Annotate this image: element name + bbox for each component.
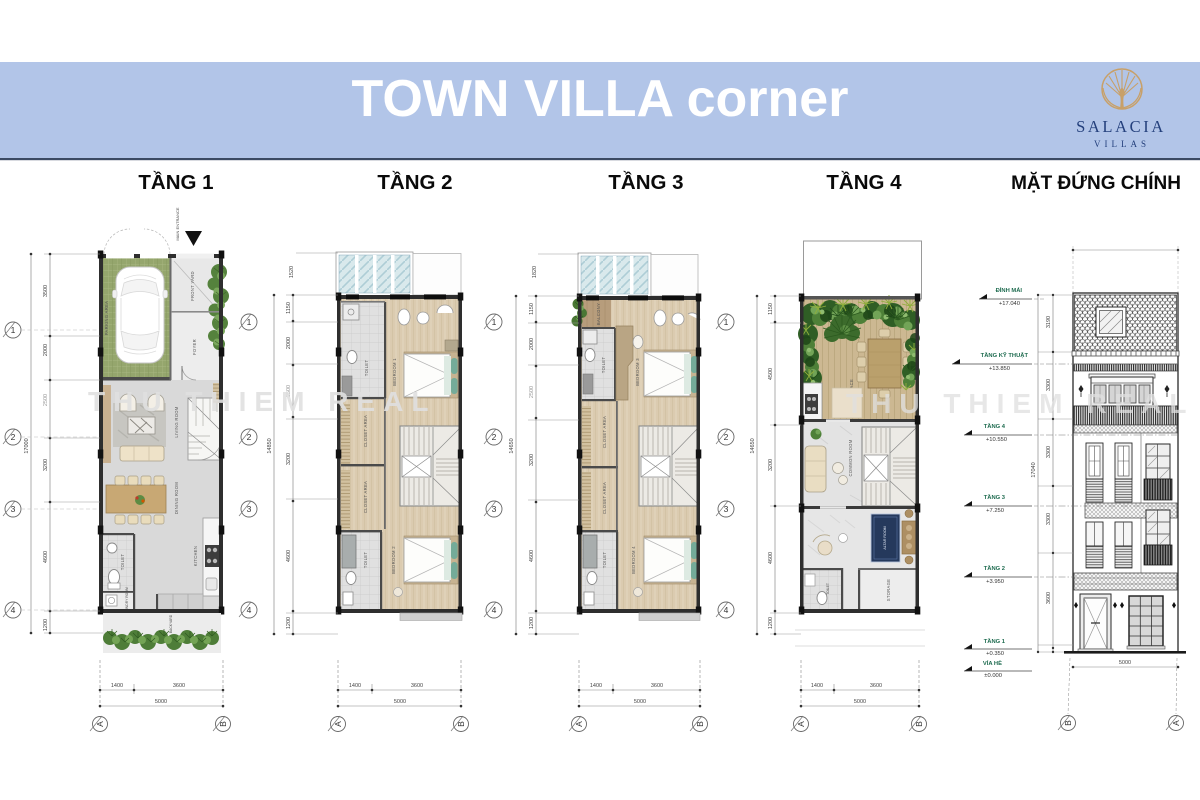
svg-text:CLOSET AREA: CLOSET AREA <box>602 416 607 448</box>
svg-text:A: A <box>95 721 105 727</box>
svg-text:TẦNG 4: TẦNG 4 <box>984 423 1006 430</box>
svg-text:SALACIA: SALACIA <box>1076 117 1166 136</box>
svg-text:+3.950: +3.950 <box>986 579 1004 585</box>
svg-text:2000: 2000 <box>43 344 49 356</box>
svg-text:2000: 2000 <box>529 338 535 350</box>
svg-text:1400: 1400 <box>111 683 123 689</box>
svg-text:BEDROOM 1: BEDROOM 1 <box>392 358 397 386</box>
svg-text:B: B <box>218 721 228 727</box>
svg-text:1400: 1400 <box>811 683 823 689</box>
svg-text:+13.850: +13.850 <box>989 366 1010 372</box>
svg-text:KITCHEN: KITCHEN <box>193 546 198 566</box>
svg-text:1150: 1150 <box>768 303 774 315</box>
svg-text:TẦNG 4: TẦNG 4 <box>826 171 902 194</box>
svg-text:TẦNG 1: TẦNG 1 <box>984 638 1006 645</box>
svg-text:1150: 1150 <box>286 302 292 314</box>
svg-text:1200: 1200 <box>286 617 292 629</box>
svg-text:1200: 1200 <box>768 617 774 629</box>
svg-text:STORAGE: STORAGE <box>886 579 891 602</box>
svg-text:PARKING AREA: PARKING AREA <box>104 301 109 335</box>
svg-text:A: A <box>574 721 584 727</box>
svg-text:14850: 14850 <box>267 438 273 453</box>
svg-text:5000: 5000 <box>1119 660 1131 666</box>
svg-text:ALTAR ROOM: ALTAR ROOM <box>883 526 887 549</box>
svg-text:TOILET: TOILET <box>601 357 606 374</box>
svg-text:3200: 3200 <box>43 459 49 471</box>
svg-text:3200: 3200 <box>768 459 774 471</box>
svg-text:5000: 5000 <box>854 699 866 705</box>
svg-text:THU THIEM REAL: THU THIEM REAL <box>88 386 436 417</box>
svg-text:4500: 4500 <box>768 368 774 380</box>
svg-text:1150: 1150 <box>529 303 535 315</box>
svg-text:CLOSET AREA: CLOSET AREA <box>602 482 607 514</box>
svg-text:3600: 3600 <box>651 683 663 689</box>
svg-text:5000: 5000 <box>394 699 406 705</box>
svg-text:±0.000: ±0.000 <box>984 673 1002 679</box>
svg-text:4600: 4600 <box>286 550 292 562</box>
svg-text:A: A <box>333 721 343 727</box>
svg-text:MAIN ENTRANCE: MAIN ENTRANCE <box>175 207 180 240</box>
svg-text:B: B <box>695 721 705 727</box>
svg-text:TOILET: TOILET <box>364 360 369 377</box>
svg-text:TẦNG 3: TẦNG 3 <box>608 171 683 194</box>
svg-text:1400: 1400 <box>349 683 361 689</box>
svg-text:CLOSET AREA: CLOSET AREA <box>363 415 368 447</box>
svg-text:5000: 5000 <box>155 699 167 705</box>
svg-text:4600: 4600 <box>768 552 774 564</box>
svg-text:TOILET: TOILET <box>363 552 368 569</box>
svg-text:3190: 3190 <box>1046 316 1052 328</box>
svg-text:+17.040: +17.040 <box>999 301 1020 307</box>
svg-text:ĐỈNH MÁI: ĐỈNH MÁI <box>996 287 1023 294</box>
svg-text:5000: 5000 <box>634 699 646 705</box>
svg-text:B: B <box>456 721 466 727</box>
svg-text:TẦNG 1: TẦNG 1 <box>138 171 213 194</box>
svg-text:BEDROOM 4: BEDROOM 4 <box>631 546 636 574</box>
svg-text:3300: 3300 <box>1046 446 1052 458</box>
svg-text:17000: 17000 <box>24 438 30 453</box>
svg-text:3600: 3600 <box>1046 592 1052 604</box>
svg-text:VỈA HÈ: VỈA HÈ <box>983 659 1002 667</box>
svg-text:A: A <box>1171 720 1181 726</box>
svg-text:2500: 2500 <box>529 386 535 398</box>
svg-text:2000: 2000 <box>286 337 292 349</box>
svg-text:THU THIEM REAL: THU THIEM REAL <box>846 388 1194 419</box>
svg-text:3600: 3600 <box>173 683 185 689</box>
svg-text:4600: 4600 <box>529 550 535 562</box>
svg-text:3200: 3200 <box>286 453 292 465</box>
svg-text:3500: 3500 <box>43 285 49 297</box>
svg-text:1820: 1820 <box>532 266 538 278</box>
svg-text:BEDROOM 3: BEDROOM 3 <box>635 358 640 386</box>
svg-text:A: A <box>796 721 806 727</box>
svg-text:MẶT ĐỨNG CHÍNH: MẶT ĐỨNG CHÍNH <box>1011 172 1181 194</box>
svg-text:3200: 3200 <box>529 454 535 466</box>
svg-text:2500: 2500 <box>43 394 49 406</box>
svg-text:14650: 14650 <box>750 438 756 453</box>
svg-text:TOILET: TOILET <box>826 583 830 595</box>
svg-text:COMMON ROOM: COMMON ROOM <box>848 439 853 476</box>
svg-text:DINING ROOM: DINING ROOM <box>174 482 179 514</box>
svg-text:1520: 1520 <box>289 266 295 278</box>
svg-text:FRONT YARD: FRONT YARD <box>190 271 195 301</box>
svg-text:BACKYARD: BACKYARD <box>169 614 173 633</box>
svg-text:3300: 3300 <box>1046 513 1052 525</box>
svg-text:+0.350: +0.350 <box>986 651 1004 657</box>
svg-text:TẦNG 2: TẦNG 2 <box>377 171 452 194</box>
svg-text:BALCONY: BALCONY <box>596 303 601 325</box>
svg-text:TOWN VILLA corner: TOWN VILLA corner <box>352 70 849 128</box>
svg-text:BEDROOM 2: BEDROOM 2 <box>391 546 396 574</box>
svg-text:TẦNG KỸ THUẬT: TẦNG KỸ THUẬT <box>981 352 1029 359</box>
svg-text:1200: 1200 <box>43 619 49 631</box>
svg-text:TẦNG 3: TẦNG 3 <box>984 494 1006 501</box>
svg-text:1200: 1200 <box>529 617 535 629</box>
svg-text:VILLAS: VILLAS <box>1094 139 1150 149</box>
svg-text:TẦNG 2: TẦNG 2 <box>984 565 1005 572</box>
svg-text:+7.250: +7.250 <box>986 508 1004 514</box>
svg-text:4600: 4600 <box>43 551 49 563</box>
svg-text:B: B <box>914 721 924 727</box>
svg-text:CLOSET AREA: CLOSET AREA <box>363 481 368 513</box>
svg-text:3600: 3600 <box>870 683 882 689</box>
svg-text:TOILET: TOILET <box>120 554 125 571</box>
svg-text:1400: 1400 <box>590 683 602 689</box>
svg-text:B: B <box>1063 720 1073 726</box>
svg-text:14650: 14650 <box>509 438 515 453</box>
svg-text:3600: 3600 <box>411 683 423 689</box>
svg-text:+10.550: +10.550 <box>986 437 1007 443</box>
svg-text:17040: 17040 <box>1031 462 1037 477</box>
svg-text:FOYER: FOYER <box>192 339 197 355</box>
svg-text:TOILET: TOILET <box>602 552 607 569</box>
